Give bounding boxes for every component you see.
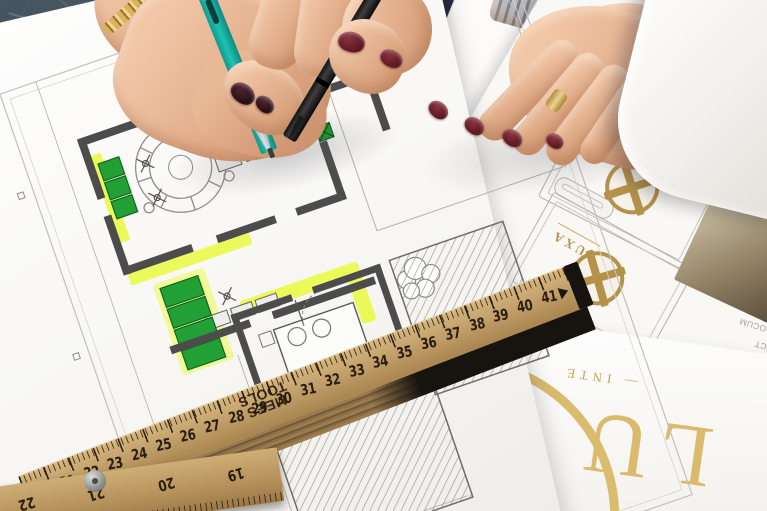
cover-title: LU — [570, 395, 718, 501]
ruler-number: 20 — [156, 473, 177, 495]
ruler-number: 40 — [516, 296, 535, 317]
pen-clip — [205, 0, 220, 25]
ruler-number: 35 — [395, 342, 414, 363]
pen-band — [315, 77, 330, 89]
ruler-number: 31 — [299, 379, 318, 400]
photo-architects-desk: LUXA LUXA NOT A SET OF ARCHITECTED TO PR… — [0, 0, 767, 511]
ruler-number: 24 — [130, 444, 149, 465]
ruler-number: 36 — [419, 333, 438, 354]
ruler-number: 37 — [443, 323, 462, 344]
ruler-number: 41 — [540, 286, 559, 307]
ruler-number: 25 — [154, 434, 173, 455]
ruler-number: 27 — [202, 416, 221, 437]
ruler-number: 26 — [178, 425, 197, 446]
ruler-number: 38 — [467, 314, 486, 335]
ruler-number: 22 — [16, 493, 37, 511]
ruler-number: 34 — [371, 351, 390, 372]
ruler-number: 33 — [347, 360, 366, 381]
ruler-hinge — [84, 470, 106, 492]
ruler-number: 32 — [323, 370, 342, 391]
cover-subtitle: — INTE — [561, 364, 638, 390]
ruler-number: 19 — [225, 463, 246, 485]
ruler-number: 39 — [492, 305, 511, 326]
